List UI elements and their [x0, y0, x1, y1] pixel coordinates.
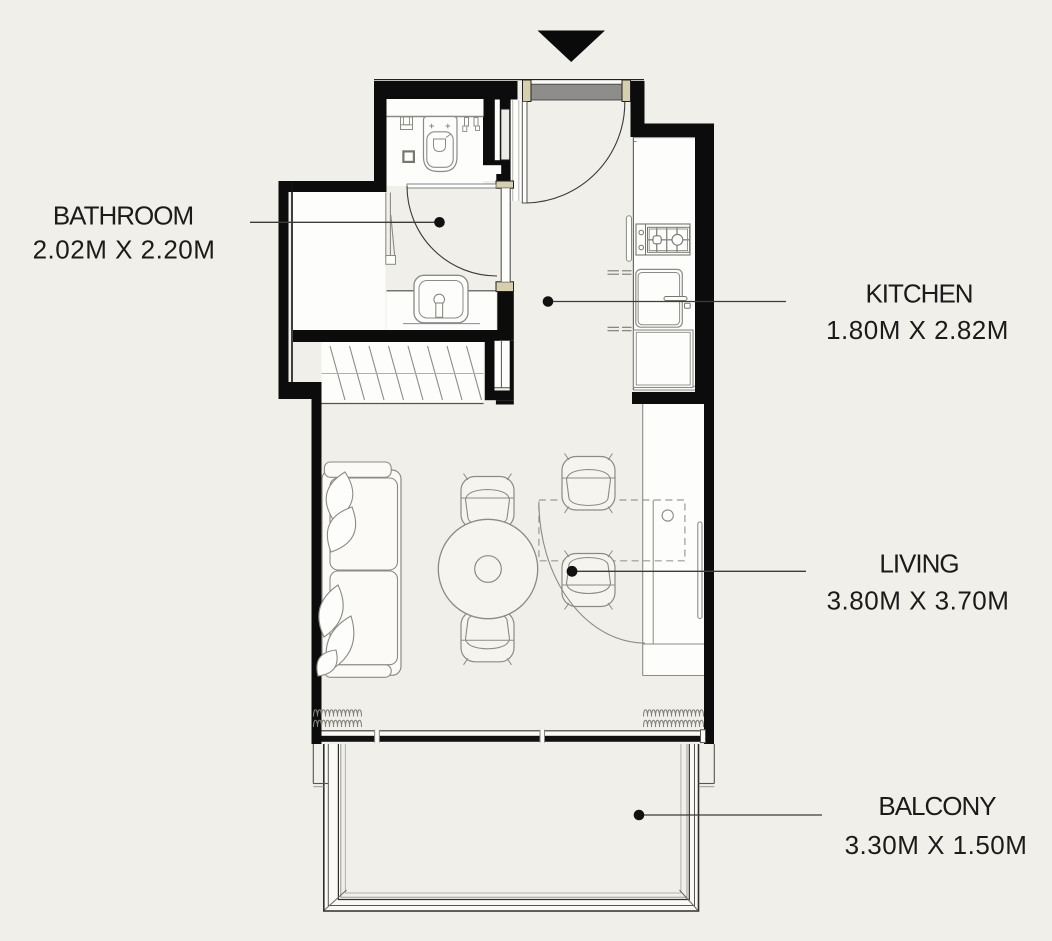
svg-text:1.80M X 2.82M: 1.80M X 2.82M: [826, 315, 1009, 345]
svg-text:3.80M X 3.70M: 3.80M X 3.70M: [827, 585, 1010, 615]
svg-text:3.30M X 1.50M: 3.30M X 1.50M: [845, 830, 1028, 860]
svg-text:LIVING: LIVING: [879, 548, 958, 578]
svg-text:KITCHEN: KITCHEN: [865, 278, 972, 308]
svg-text:BATHROOM: BATHROOM: [53, 200, 193, 230]
svg-text:2.02M X 2.20M: 2.02M X 2.20M: [33, 235, 216, 265]
svg-text:BALCONY: BALCONY: [878, 791, 996, 821]
